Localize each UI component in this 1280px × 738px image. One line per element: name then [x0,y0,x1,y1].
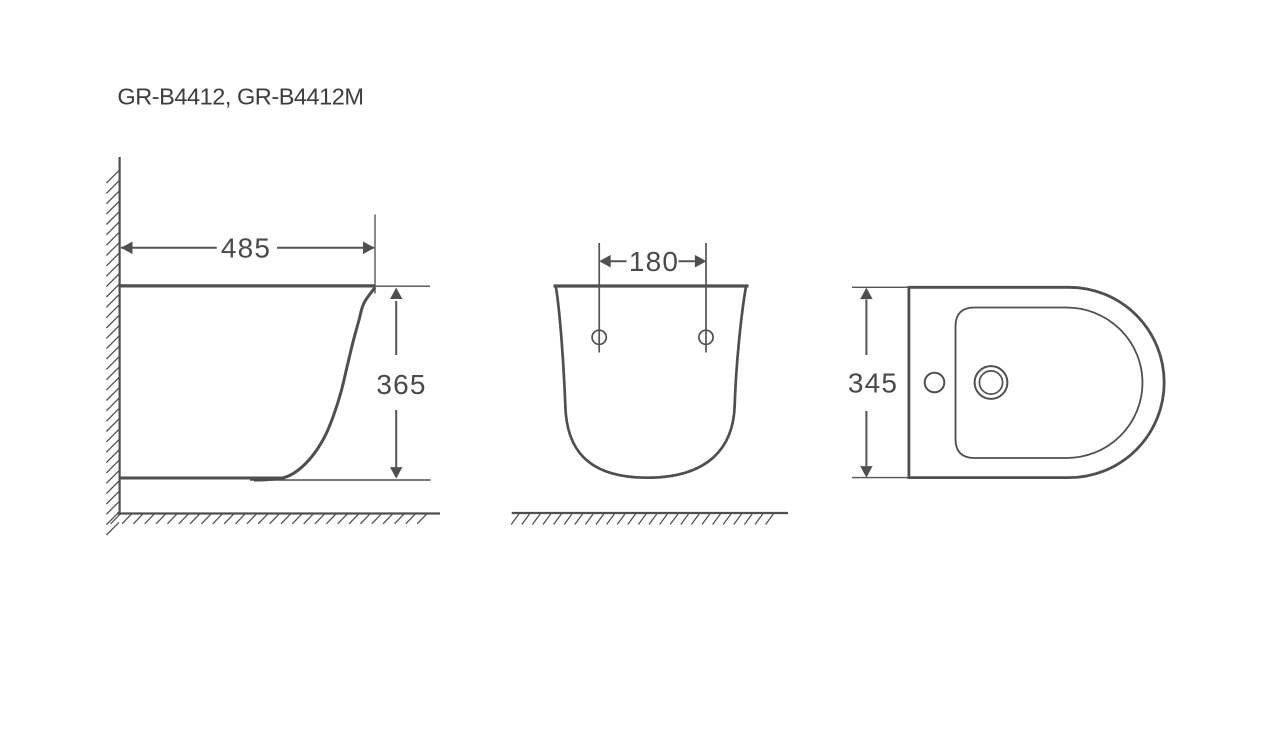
svg-text:365: 365 [376,369,426,400]
svg-text:485: 485 [221,233,271,264]
svg-text:GR-B4412, GR-B4412M: GR-B4412, GR-B4412M [117,84,363,110]
svg-text:180: 180 [629,246,679,277]
svg-text:345: 345 [848,368,898,399]
